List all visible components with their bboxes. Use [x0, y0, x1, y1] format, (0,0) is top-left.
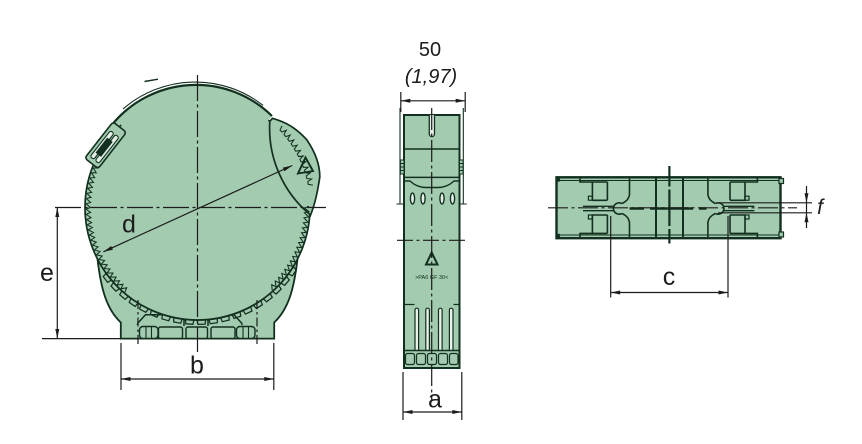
svg-text:c: c — [663, 263, 676, 291]
svg-text:b: b — [190, 352, 204, 380]
svg-text:(1,97): (1,97) — [405, 66, 457, 88]
svg-text:a: a — [428, 386, 442, 414]
svg-text:e: e — [40, 259, 54, 287]
svg-text:d: d — [122, 211, 136, 239]
svg-text:50: 50 — [419, 39, 441, 61]
